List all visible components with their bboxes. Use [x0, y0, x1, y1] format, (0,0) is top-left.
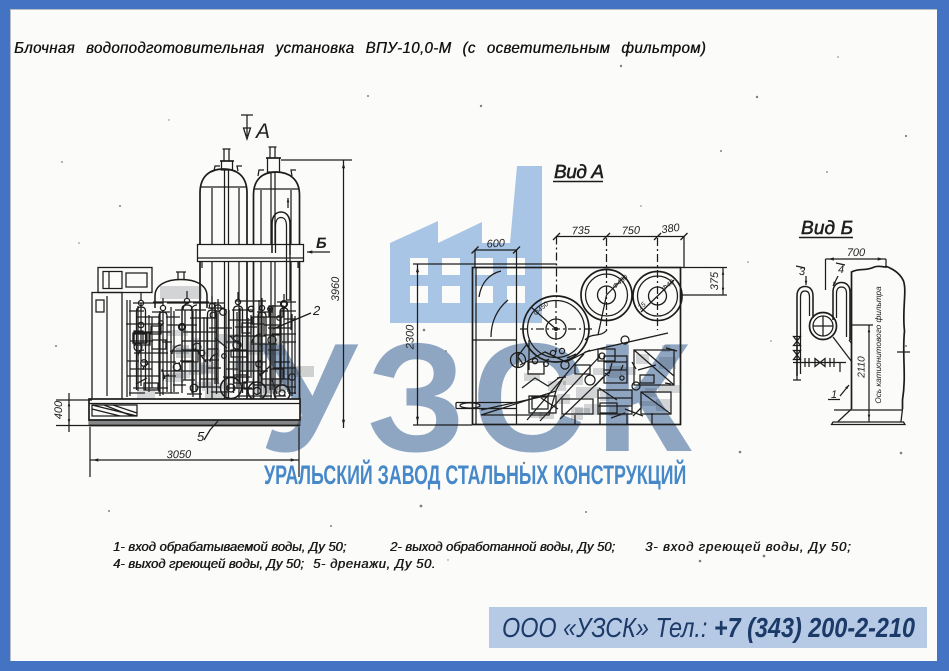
svg-text:375: 375: [709, 271, 721, 290]
svg-text:Вид А: Вид А: [554, 162, 604, 183]
svg-text:600: 600: [486, 237, 506, 250]
svg-text:5: 5: [197, 429, 205, 444]
svg-text:Ось катионитового фильтра: Ось катионитового фильтра: [874, 286, 883, 404]
svg-text:Б: Б: [316, 235, 327, 252]
svg-text:Вид Б: Вид Б: [801, 218, 853, 239]
svg-text:2300: 2300: [405, 324, 417, 350]
svg-text:380: 380: [661, 222, 682, 237]
svg-text:735: 735: [571, 224, 591, 237]
svg-text:2: 2: [312, 303, 321, 318]
svg-text:2110: 2110: [857, 356, 868, 379]
svg-text:А: А: [254, 120, 270, 143]
svg-text:750: 750: [622, 225, 642, 238]
svg-text:700: 700: [847, 247, 866, 259]
svg-text:4: 4: [838, 264, 844, 276]
svg-text:3050: 3050: [167, 449, 193, 461]
svg-text:3960: 3960: [330, 276, 342, 301]
svg-text:400: 400: [53, 400, 65, 419]
